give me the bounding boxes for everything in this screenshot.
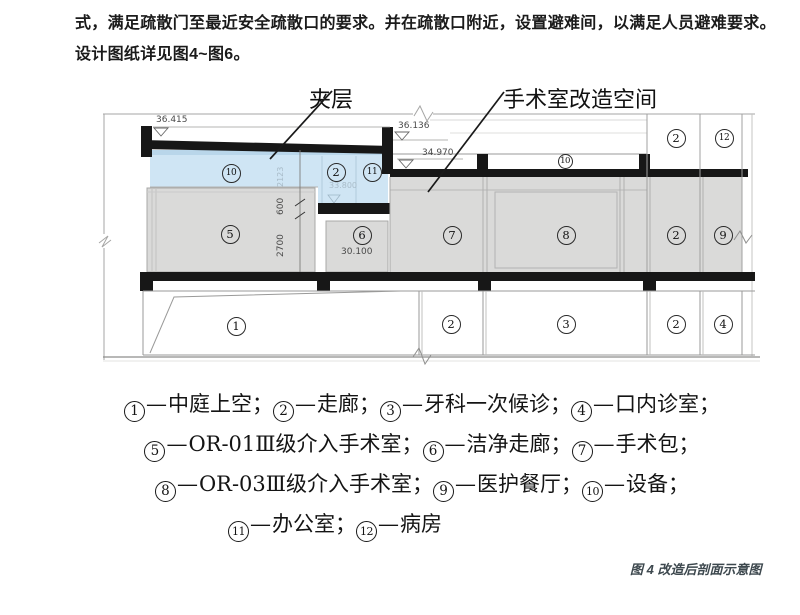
legend-item-dash: — <box>294 392 317 416</box>
elevation-marker <box>399 160 413 168</box>
dimension-text: 34.970 <box>422 148 454 158</box>
room-number-label: 6 <box>353 226 372 245</box>
break-mark-top <box>414 106 433 121</box>
legend-item-label: 医护餐厅 <box>477 472 561 496</box>
room-number-label: 2 <box>667 226 686 245</box>
dimension-text: 600 <box>275 198 287 215</box>
legend-item-separator: ； <box>402 432 423 456</box>
legend-item-separator: ； <box>668 472 689 496</box>
room-number-label: 1 <box>227 317 246 336</box>
legend-item-dash: — <box>145 392 168 416</box>
legend-item: 1—中庭上空； <box>124 392 273 416</box>
legend-item: 6—洁净走廊； <box>423 432 572 456</box>
legend-item: 11—办公室； <box>228 512 356 536</box>
legend-item-label: 病房 <box>400 512 442 536</box>
room-number-label: 2 <box>442 315 461 334</box>
legend-item-number: 4 <box>571 401 592 422</box>
legend-item-number: 1 <box>124 401 145 422</box>
legend-item-number: 11 <box>228 521 249 542</box>
legend-item-label: 洁净走廊 <box>467 432 551 456</box>
legend-item-separator: ； <box>679 432 700 456</box>
room-number-label: 12 <box>715 129 734 148</box>
column-stub <box>140 281 153 291</box>
figure-legend: 1—中庭上空；2—走廊；3—牙科一次候诊；4—口内诊室；5—OR-01Ⅲ级介入手… <box>0 384 800 544</box>
figure-caption: 图 4 改造后剖面示意图 <box>630 559 761 578</box>
dimension-text: 36.136 <box>398 121 430 131</box>
legend-item: 7—手术包； <box>572 432 700 456</box>
legend-item: 2—走廊； <box>273 392 380 416</box>
room-number-label: 10 <box>558 154 573 169</box>
column <box>477 154 488 170</box>
legend-item-label: OR-03Ⅲ级介入手术室 <box>199 472 412 496</box>
elevation-marker <box>395 132 409 140</box>
legend-item-dash: — <box>165 432 188 456</box>
legend-line: 8—OR-03Ⅲ级介入手术室；9—医护餐厅；10—设备； <box>0 464 800 504</box>
room-number-label: 9 <box>714 226 733 245</box>
column-stub <box>643 281 656 291</box>
legend-item-label: OR-01Ⅲ级介入手术室 <box>188 432 401 456</box>
room-number-label: 5 <box>221 225 240 244</box>
dimension-text: 30.100 <box>341 247 373 257</box>
legend-item: 3—牙科一次候诊； <box>380 392 571 416</box>
legend-item-number: 7 <box>572 441 593 462</box>
legend-item: 10—设备； <box>582 472 689 496</box>
break-mark-left <box>99 236 111 247</box>
legend-item-dash: — <box>401 392 424 416</box>
legend-item-number: 5 <box>144 441 165 462</box>
column-stub <box>478 281 491 291</box>
atrium-slope-line <box>150 291 401 353</box>
dimension-text: 36.415 <box>156 115 188 125</box>
legend-item-label: 设备 <box>626 472 668 496</box>
document-page: 式，满足疏散门至最近安全疏散口的要求。并在疏散口附近，设置避难间，以满足人员避难… <box>0 0 800 615</box>
room-number-label: 2 <box>667 129 686 148</box>
legend-item-label: 牙科一次候诊 <box>424 392 550 416</box>
legend-item-label: 口内诊室 <box>615 392 699 416</box>
legend-item-number: 3 <box>380 401 401 422</box>
slab <box>318 203 390 214</box>
legend-item-number: 12 <box>356 521 377 542</box>
legend-item-number: 6 <box>423 441 444 462</box>
dimension-text: 2123 <box>275 167 287 187</box>
legend-item-separator: ； <box>550 392 571 416</box>
legend-item: 9—医护餐厅； <box>433 472 582 496</box>
legend-item-label: 走廊 <box>317 392 359 416</box>
column-stub <box>317 281 330 291</box>
legend-item: 8—OR-03Ⅲ级介入手术室； <box>155 472 433 496</box>
legend-item-separator: ； <box>252 392 273 416</box>
legend-item-dash: — <box>176 472 199 496</box>
legend-item-label: 手术包 <box>616 432 679 456</box>
legend-item-label: 办公室 <box>272 512 335 536</box>
legend-item-dash: — <box>249 512 272 536</box>
legend-item-separator: ； <box>561 472 582 496</box>
dimension-text: 33.800 <box>329 181 357 190</box>
legend-item-label: 中庭上空 <box>168 392 252 416</box>
room-number-label: 10 <box>222 164 241 183</box>
room-number-label: 3 <box>557 315 576 334</box>
legend-item-number: 9 <box>433 481 454 502</box>
room-number-label: 8 <box>557 226 576 245</box>
legend-item-separator: ； <box>412 472 433 496</box>
room-number-label: 11 <box>363 163 382 182</box>
legend-item-dash: — <box>377 512 400 536</box>
legend-item-number: 8 <box>155 481 176 502</box>
legend-line: 5—OR-01Ⅲ级介入手术室；6—洁净走廊；7—手术包； <box>0 424 800 464</box>
room-number-label: 4 <box>714 315 733 334</box>
legend-item: 4—口内诊室； <box>571 392 720 416</box>
legend-item-dash: — <box>454 472 477 496</box>
legend-item-dash: — <box>592 392 615 416</box>
legend-item-dash: — <box>444 432 467 456</box>
legend-item-separator: ； <box>551 432 572 456</box>
room-number-label: 2 <box>327 163 346 182</box>
column <box>639 154 650 170</box>
column <box>141 126 152 157</box>
floor-slab <box>140 272 755 281</box>
elevation-marker <box>154 128 168 136</box>
column <box>382 127 393 174</box>
legend-line: 11—办公室；12—病房 <box>0 504 800 544</box>
room-number-label: 2 <box>667 315 686 334</box>
room-number-label: 7 <box>443 226 462 245</box>
legend-item-separator: ； <box>335 512 356 536</box>
legend-item-separator: ； <box>699 392 720 416</box>
dimension-text: 2700 <box>275 234 287 257</box>
legend-item-dash: — <box>603 472 626 496</box>
legend-line: 1—中庭上空；2—走廊；3—牙科一次候诊；4—口内诊室； <box>0 384 800 424</box>
legend-item: 12—病房 <box>356 512 442 536</box>
legend-item-number: 10 <box>582 481 603 502</box>
legend-item-separator: ； <box>359 392 380 416</box>
legend-item-dash: — <box>593 432 616 456</box>
legend-item-number: 2 <box>273 401 294 422</box>
legend-item: 5—OR-01Ⅲ级介入手术室； <box>144 432 422 456</box>
